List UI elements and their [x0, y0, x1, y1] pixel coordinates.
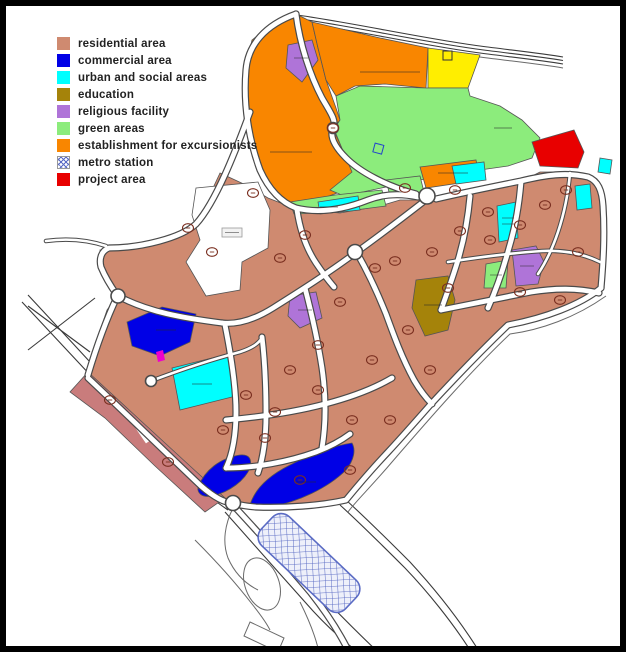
zone-urban-corner-right [598, 158, 612, 174]
project-swatch [57, 173, 70, 186]
legend-label: education [78, 89, 134, 101]
legend-label: urban and social areas [78, 72, 207, 84]
urban-social-swatch [57, 71, 70, 84]
legend-label: green areas [78, 123, 145, 135]
legend-row-metro: metro station [57, 154, 257, 171]
legend-label: establishment for excursionists [78, 140, 257, 152]
legend-label: residential area [78, 38, 166, 50]
zone-urban-small-right [575, 184, 592, 210]
education-swatch [57, 88, 70, 101]
zone-project-area [532, 130, 584, 168]
legend: residential area commercial area urban a… [57, 35, 257, 188]
zone-excursionists-band [312, 22, 428, 96]
green-areas-swatch [57, 122, 70, 135]
commercial-swatch [57, 54, 70, 67]
metro-swatch [57, 156, 70, 169]
excursionists-swatch [57, 139, 70, 152]
legend-row-residential: residential area [57, 35, 257, 52]
legend-row-green-areas: green areas [57, 120, 257, 137]
legend-row-excursionists: establishment for excursionists [57, 137, 257, 154]
zone-yellow-wedge [428, 48, 480, 88]
map-frame: residential area commercial area urban a… [0, 0, 626, 652]
legend-label: metro station [78, 157, 153, 169]
legend-row-urban-social: urban and social areas [57, 69, 257, 86]
legend-row-project: project area [57, 171, 257, 188]
legend-label: religious facility [78, 106, 169, 118]
legend-row-commercial: commercial area [57, 52, 257, 69]
legend-label: commercial area [78, 55, 172, 67]
legend-row-education: education [57, 86, 257, 103]
residential-swatch [57, 37, 70, 50]
religious-swatch [57, 105, 70, 118]
legend-row-religious: religious facility [57, 103, 257, 120]
legend-label: project area [78, 174, 146, 186]
